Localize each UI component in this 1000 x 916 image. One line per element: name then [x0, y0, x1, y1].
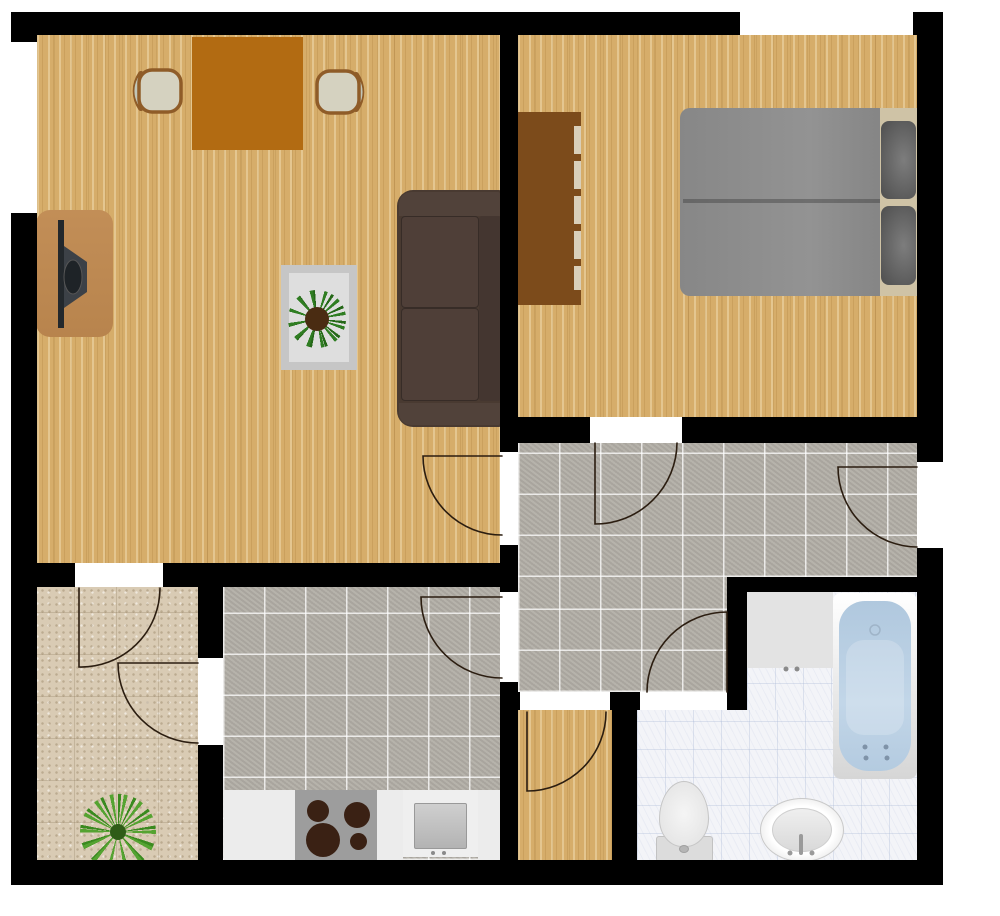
- door-opening-living-entry: [75, 563, 163, 587]
- wall-right: [917, 12, 943, 885]
- kitchen-counter-mid[interactable]: [377, 790, 403, 860]
- wardrobe[interactable]: [518, 112, 581, 305]
- sofa-backrest[interactable]: [479, 216, 501, 401]
- burner-bottom-right[interactable]: [350, 833, 367, 850]
- wall-bedroom-hallway: [500, 417, 943, 443]
- wall-bath-left-upper: [727, 577, 747, 710]
- kitchen-sink-basin[interactable]: [414, 803, 467, 849]
- kitchen-counter-right[interactable]: [478, 790, 500, 860]
- wall-closet-bath: [612, 692, 637, 862]
- window-left[interactable]: [11, 42, 37, 213]
- tv-stand[interactable]: [36, 210, 113, 337]
- bathtub-inner-highlight[interactable]: [846, 640, 904, 735]
- dining-table[interactable]: [192, 37, 303, 150]
- washing-machine[interactable]: [747, 592, 833, 668]
- bed-mattress-split[interactable]: [683, 199, 880, 203]
- entry-plant-center[interactable]: [110, 824, 126, 840]
- wall-hallway-bath-horiz: [727, 577, 943, 592]
- wall-living-bedroom: [500, 35, 518, 860]
- door-opening-living-hall: [500, 452, 518, 545]
- sofa-cushion-2[interactable]: [401, 308, 479, 401]
- burner-bottom-left[interactable]: [306, 823, 340, 857]
- bathroom-sink-basin[interactable]: [772, 808, 832, 852]
- burner-top-right[interactable]: [344, 802, 370, 828]
- hallway-floor-lower: [518, 577, 727, 692]
- kitchen-counter-left[interactable]: [224, 790, 295, 860]
- door-opening-entry-kitchen: [198, 658, 223, 745]
- wardrobe-door-strip[interactable]: [574, 126, 581, 290]
- door-opening-kitchen-hall: [500, 592, 518, 682]
- wall-bottom: [11, 860, 943, 885]
- sofa-armrest-bottom[interactable]: [399, 403, 500, 425]
- door-opening-bedroom: [590, 417, 682, 443]
- floor-plan: [0, 0, 1000, 916]
- bed-pillow-2[interactable]: [881, 206, 916, 285]
- rug-plant-pot[interactable]: [305, 307, 329, 331]
- door-opening-bathroom: [640, 692, 727, 710]
- hallway-floor-upper: [518, 443, 917, 577]
- window-bedroom-top[interactable]: [740, 12, 913, 35]
- door-opening-hall-right[interactable]: [917, 462, 943, 548]
- burner-top-left[interactable]: [307, 800, 329, 822]
- closet-floor: [518, 708, 612, 860]
- sofa-armrest-top[interactable]: [399, 192, 500, 216]
- door-opening-closet: [520, 692, 610, 710]
- sofa-cushion-1[interactable]: [401, 216, 479, 308]
- bed-pillow-1[interactable]: [881, 121, 916, 199]
